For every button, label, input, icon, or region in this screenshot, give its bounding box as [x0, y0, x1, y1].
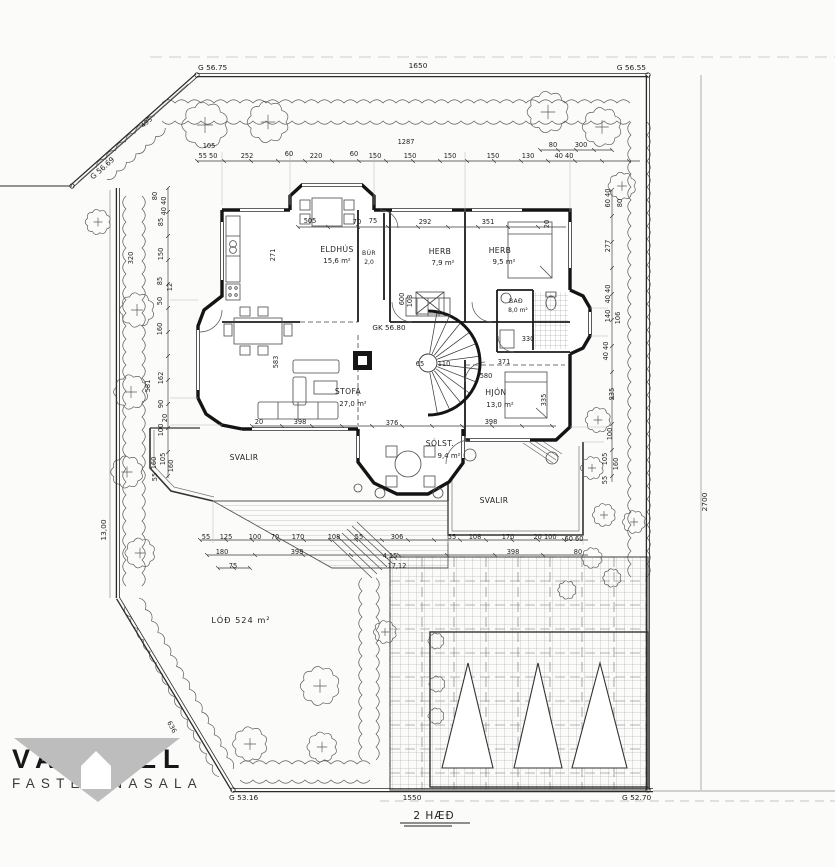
dim-label: 160: [150, 457, 158, 470]
tree: [592, 504, 615, 527]
dim-label: 85: [156, 277, 164, 285]
dim-label: 505: [304, 217, 317, 225]
dim-label: 17,12: [388, 562, 407, 570]
dim-label: 150: [444, 152, 457, 160]
dim-label: 20: [161, 414, 169, 422]
site-plan-page: G 56.75 G 56.55 G 56.69 G 53.16 G 52.70 …: [0, 0, 835, 867]
dim-label: 75: [369, 217, 377, 225]
room-label: HERB: [429, 247, 452, 256]
lot-area-label: LÓÐ 524 m²: [211, 614, 270, 625]
hedge: [107, 128, 166, 180]
room-area: 15,6 m²: [323, 257, 351, 265]
dim-label: 40 40: [160, 197, 168, 216]
dim-label: 600: [398, 293, 406, 306]
room-label: ELDHÚS: [320, 245, 353, 254]
hedge: [240, 780, 370, 783]
right-balcony-railing: [448, 440, 583, 535]
dim-label: 130: [522, 152, 535, 160]
bath-tile-floor: [533, 292, 568, 349]
dim-label: 162: [157, 372, 165, 385]
dim-label: 108: [328, 533, 341, 541]
room-area: 9,5 m²: [493, 258, 516, 266]
fireplace: [353, 351, 372, 370]
dim-label: 20 100: [533, 533, 556, 541]
room-area: 9,4 m²: [438, 452, 461, 460]
hedge: [376, 578, 379, 760]
dim-label: 55: [355, 533, 363, 541]
room-label: STOFA: [335, 387, 362, 396]
window: [252, 428, 348, 431]
dim-label: 398: [291, 548, 304, 556]
dim-label: 20: [255, 418, 263, 426]
room-label: HERB: [489, 246, 512, 255]
hedge: [240, 761, 370, 764]
dim-label: 398: [294, 418, 307, 426]
corner-elevation: G 52.70: [622, 793, 652, 802]
boundary-dim: 1650: [409, 61, 428, 70]
window: [569, 222, 572, 268]
dim-label: 55: [448, 533, 456, 541]
dim-label: 55 50: [199, 152, 218, 160]
valholl-logo-mark: [12, 736, 184, 806]
corner-elevation: G 56.69: [88, 155, 116, 181]
hedge: [162, 121, 630, 124]
dim-label: 60: [350, 150, 358, 158]
floor-elevation-label: GK 56.80: [372, 323, 406, 332]
window: [472, 209, 522, 212]
window: [357, 436, 360, 458]
dim-label: 292: [419, 218, 432, 226]
dim-label: 180: [216, 548, 229, 556]
dim-label: 150: [487, 152, 500, 160]
dim-label: 583: [272, 356, 280, 369]
dim-label: 100: [606, 428, 614, 441]
dim-label: 60: [285, 150, 293, 158]
driveway-area: [390, 557, 648, 790]
dim-label: 60 40: [604, 189, 612, 208]
dim-label: 40 40: [604, 285, 612, 304]
dim-label: 12: [166, 283, 174, 291]
dim-label: 330: [522, 335, 535, 343]
conifer-trees: [442, 663, 627, 768]
corner-elevation: G 56.55: [617, 63, 647, 72]
dim-label: 220: [310, 152, 323, 160]
tree: [582, 108, 621, 147]
dim-label: 55: [202, 533, 210, 541]
room-label: SVALIR: [480, 496, 509, 505]
valholl-logo: VALHÖLL FASTEIGNASALA: [12, 736, 222, 791]
corner-elevation: G 56.75: [198, 63, 228, 72]
dim-label: 252: [241, 152, 254, 160]
boundary-line: [71, 74, 196, 185]
dim-label: 105: [203, 142, 216, 150]
dim-label: 4,15: [383, 552, 398, 560]
dim-label: 277: [604, 240, 612, 253]
dim-label: 50: [156, 297, 164, 305]
dim-label: 140: [604, 310, 612, 323]
dim-label: 55: [151, 473, 159, 481]
window: [589, 312, 592, 334]
hedge: [628, 122, 631, 577]
dim-label: 108: [469, 533, 482, 541]
tree: [580, 457, 603, 480]
dim-label: 351: [482, 218, 495, 226]
dim-label: 80: [151, 192, 159, 200]
tree: [85, 209, 110, 234]
dim-label: 100: [249, 533, 262, 541]
floor-note: 2 HÆÐ: [413, 810, 454, 822]
dim-label: 65: [416, 360, 424, 368]
dim-label: 105: [601, 453, 609, 466]
dim-label: 100: [157, 424, 165, 437]
room-label: HJÓN: [485, 388, 506, 397]
tree: [111, 456, 143, 488]
boundary-dim: 1550: [403, 793, 422, 802]
dim-label: 300: [575, 141, 588, 149]
dim-label: 160: [156, 323, 164, 336]
room-area: 2,0: [364, 259, 374, 266]
dim-label: 40 40: [602, 342, 610, 361]
room-label: BÚR: [362, 250, 376, 257]
dim-label: 376: [386, 419, 399, 427]
dim-label: 106: [614, 312, 622, 325]
dim-label: 90: [157, 400, 165, 408]
hedge: [162, 100, 630, 103]
window: [240, 209, 284, 212]
tree: [233, 727, 267, 761]
dim-label: 20: [543, 220, 551, 228]
dim-label: 70: [353, 218, 361, 226]
dim-label: 103: [406, 295, 414, 308]
dim-label: 160: [167, 460, 175, 473]
dim-label: 150: [369, 152, 382, 160]
dim-label: 170: [502, 533, 515, 541]
dim-label: 371: [498, 358, 511, 366]
dim-label: 80: [574, 548, 582, 556]
dim-label: 335: [540, 394, 548, 407]
room-label: SVALIR: [230, 453, 259, 462]
room-label: BAÐ: [509, 298, 523, 305]
dim-label: 580: [480, 372, 493, 380]
dim-label: 80: [616, 199, 624, 207]
boundary-dim: 13,00: [99, 519, 108, 540]
dim-label: 40 40: [555, 152, 574, 160]
window: [197, 330, 200, 390]
hedge: [123, 196, 126, 586]
floor-note-underline: [400, 823, 470, 826]
dim-label: 235: [608, 388, 616, 401]
tree: [622, 511, 645, 534]
hedge: [359, 578, 362, 760]
corner-elevation: G 53.16: [229, 793, 259, 802]
dim-label: 398: [507, 548, 520, 556]
room-area: 8,0 m²: [508, 307, 528, 314]
dim-label: 320: [127, 252, 135, 265]
tree: [527, 91, 568, 132]
tree: [247, 101, 288, 142]
dim-label: 581: [144, 380, 152, 393]
dim-label: 170: [292, 533, 305, 541]
tree: [307, 732, 336, 762]
window: [302, 184, 362, 187]
window: [470, 439, 530, 442]
dim-label: 398: [485, 418, 498, 426]
dim-label: 80: [549, 141, 557, 149]
dim-label: 125: [220, 533, 233, 541]
dim-label: 55: [601, 476, 609, 484]
dim-label: 75: [229, 562, 237, 570]
tree: [125, 538, 154, 568]
room-area: 27,0 m²: [339, 400, 367, 408]
window: [392, 209, 452, 212]
dim-label: 271: [269, 249, 277, 262]
room-area: 7,9 m²: [432, 259, 455, 267]
boundary-dim: 2700: [700, 492, 709, 511]
dim-label: 60 60: [565, 535, 584, 543]
room-label: SÓLST.: [426, 439, 454, 448]
dim-label: 306: [391, 533, 404, 541]
window: [221, 222, 224, 280]
dim-label: 160: [612, 458, 620, 471]
dim-label: 70: [271, 533, 279, 541]
dim-label: 110: [438, 360, 451, 368]
dim-label: 1287: [398, 138, 415, 146]
boundary-dim: 636: [165, 720, 178, 735]
dim-label: 105: [159, 453, 167, 466]
dim-label: 150: [157, 248, 165, 261]
tree: [120, 293, 154, 327]
room-area: 13,0 m²: [486, 401, 514, 409]
tree: [300, 667, 339, 706]
dim-label: 85: [157, 218, 165, 226]
dim-label: 150: [404, 152, 417, 160]
